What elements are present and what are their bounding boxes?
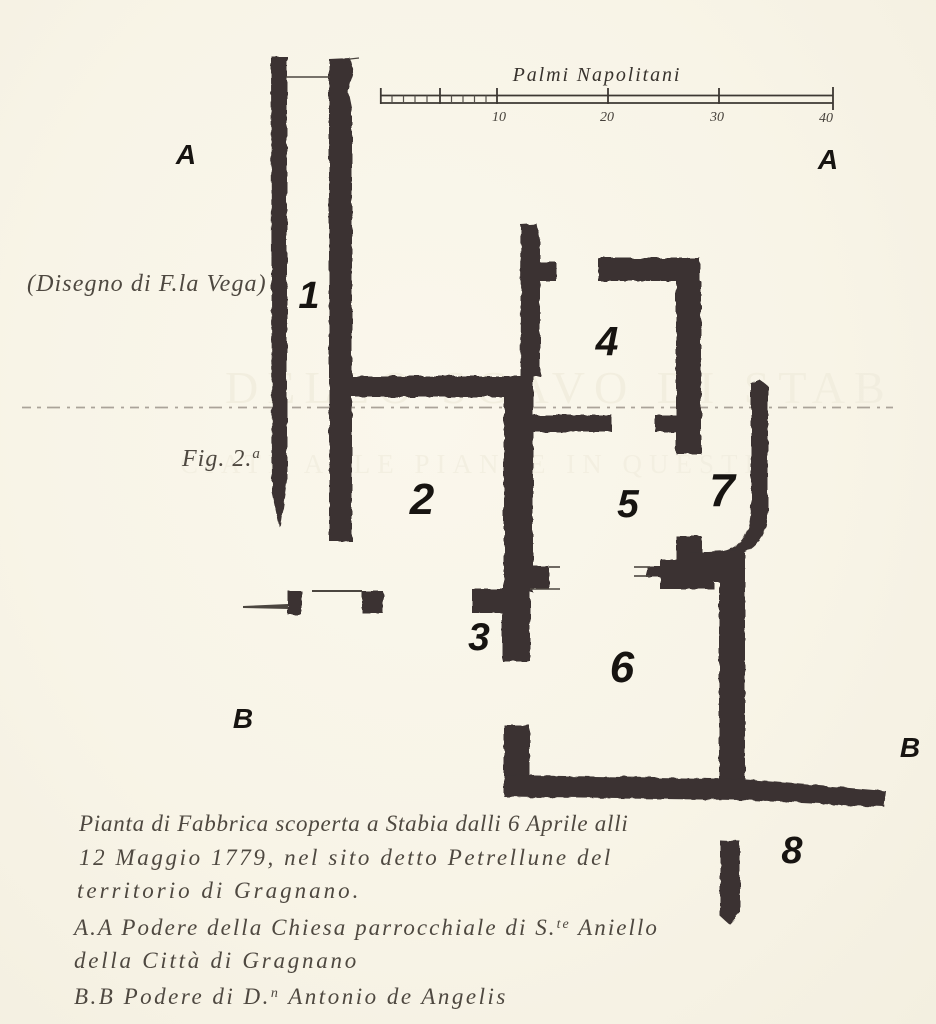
svg-text:7: 7 bbox=[709, 464, 737, 516]
svg-text:10: 10 bbox=[492, 110, 506, 125]
svg-text:A.A Podere della Chiesa parroc: A.A Podere della Chiesa parrocchiale di … bbox=[72, 915, 659, 940]
svg-text:Fig. 2.a: Fig. 2.a bbox=[181, 446, 261, 472]
svg-text:DELLO SCAVO DI STAB: DELLO SCAVO DI STAB bbox=[225, 362, 894, 413]
svg-text:2: 2 bbox=[409, 475, 435, 524]
svg-text:1: 1 bbox=[298, 275, 319, 317]
svg-text:20: 20 bbox=[600, 110, 614, 125]
svg-text:B: B bbox=[900, 732, 920, 763]
svg-text:B.B Podere di D.n Antonio de A: B.B Podere di D.n Antonio de Angelis bbox=[74, 984, 508, 1009]
svg-text:5: 5 bbox=[617, 483, 640, 526]
svg-text:40: 40 bbox=[819, 111, 833, 126]
svg-text:A: A bbox=[175, 139, 196, 170]
svg-text:territorio di Gragnano.: territorio di Gragnano. bbox=[77, 878, 361, 903]
svg-text:30: 30 bbox=[709, 110, 724, 125]
svg-text:Pianta di Fabbrica scoperta a: Pianta di Fabbrica scoperta a Stabia dal… bbox=[78, 811, 628, 836]
svg-text:3: 3 bbox=[468, 616, 490, 659]
svg-text:Palmi Napolitani: Palmi Napolitani bbox=[512, 64, 682, 86]
svg-text:A: A bbox=[817, 144, 838, 175]
svg-text:4: 4 bbox=[595, 318, 619, 364]
svg-text:12 Maggio 1779, nel sito detto: 12 Maggio 1779, nel sito detto Petrellun… bbox=[79, 845, 613, 870]
svg-text:della Città di Gragnano: della Città di Gragnano bbox=[74, 948, 359, 973]
svg-text:8: 8 bbox=[781, 830, 803, 872]
svg-text:(Disegno di F.la Vega): (Disegno di F.la Vega) bbox=[27, 271, 267, 297]
svg-text:6: 6 bbox=[610, 643, 635, 692]
svg-text:B: B bbox=[233, 703, 253, 734]
